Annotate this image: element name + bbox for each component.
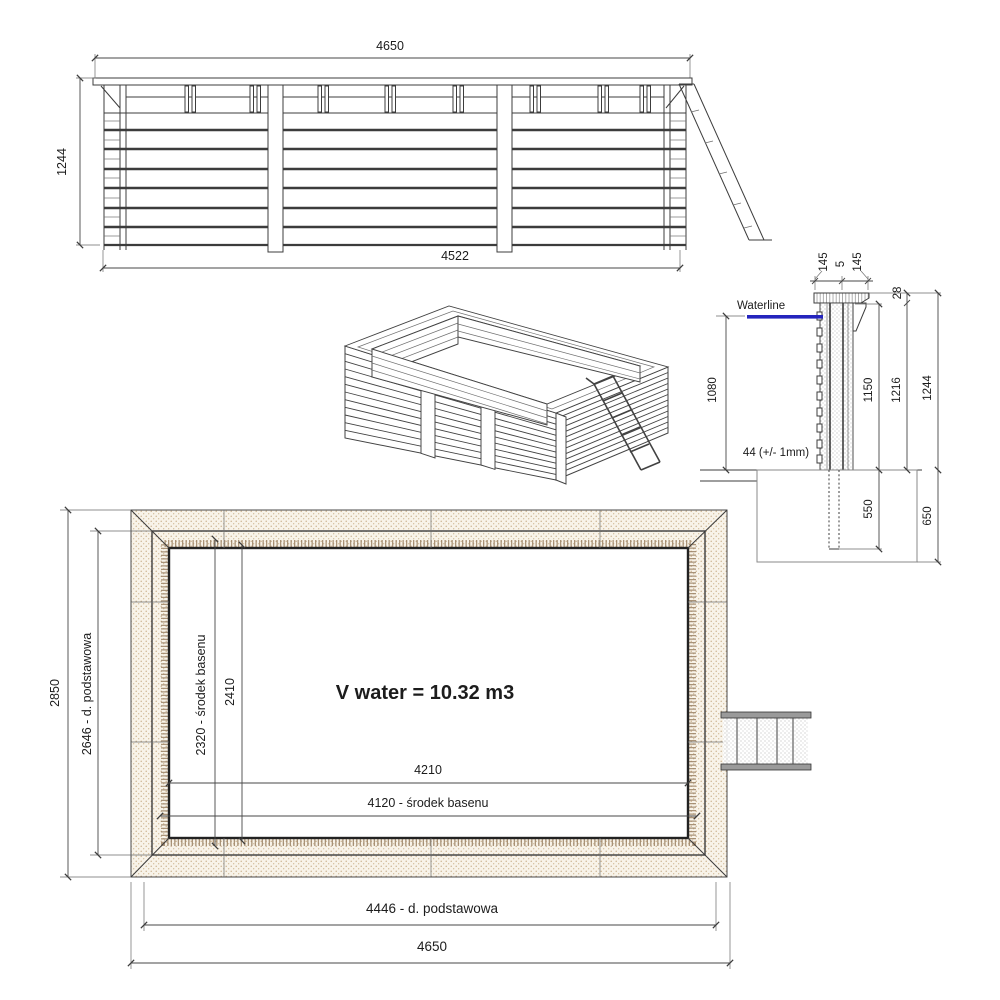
elevation-post bbox=[268, 85, 283, 252]
pool-drawing-svg: 4650 bbox=[0, 0, 1000, 1000]
waterline-marker bbox=[747, 315, 823, 319]
section-dim-footing-depth: 650 bbox=[922, 506, 934, 525]
waterline-label: Waterline bbox=[737, 300, 785, 312]
side-elevation-view: 4650 bbox=[55, 39, 772, 272]
elevation-coping bbox=[93, 78, 692, 85]
isometric-view bbox=[345, 306, 668, 484]
elevation-top-rail-band bbox=[126, 86, 664, 112]
plan-dim-inner-width: 4210 bbox=[414, 763, 442, 777]
section-dim-1080: 1080 bbox=[707, 316, 745, 470]
elevation-planks bbox=[104, 113, 686, 245]
cross-section-view: 145 5 145 Waterline bbox=[700, 252, 941, 562]
elevation-dim-bottom-label: 4522 bbox=[441, 249, 469, 263]
plan-ladder bbox=[721, 712, 811, 770]
plan-dim-outer-height: 2850 bbox=[48, 679, 62, 707]
plan-dim-center-width: 4120 - środek basenu bbox=[368, 796, 489, 810]
elevation-dim-left-label: 1244 bbox=[55, 148, 69, 176]
elevation-dim-bottom: 4522 bbox=[103, 249, 680, 272]
section-dim-water-depth: 1080 bbox=[707, 377, 719, 403]
plan-bottom-dims: 4446 - d. podstawowa 4650 bbox=[131, 882, 730, 969]
plan-dim-outer-width: 4650 bbox=[417, 939, 447, 954]
section-cap-dims: 145 5 145 bbox=[810, 252, 873, 290]
plan-view: V water = 10.32 m3 2850 2646 - d. podsta… bbox=[48, 510, 811, 969]
section-dim-cap-gap: 5 bbox=[835, 261, 847, 267]
plan-dim-inner-height: 2410 bbox=[223, 678, 237, 706]
plan-dim-base-width: 4446 - d. podstawowa bbox=[366, 901, 499, 916]
section-dim-cap-thickness: 28 bbox=[892, 287, 904, 300]
section-waterline: Waterline bbox=[737, 300, 823, 319]
section-wall bbox=[817, 303, 866, 470]
plan-dim-center-height: 2320 - środek basenu bbox=[194, 634, 208, 755]
iso-corner-post bbox=[556, 413, 566, 484]
section-dim-wall-height: 1150 bbox=[863, 378, 875, 403]
section-ground-footing bbox=[700, 470, 922, 562]
section-dim-cap-right: 145 bbox=[852, 252, 864, 271]
section-cap bbox=[814, 293, 869, 303]
section-dim-wall-with-cap: 1216 bbox=[891, 377, 903, 403]
elevation-dim-top: 4650 bbox=[95, 39, 690, 80]
elevation-dim-top-label: 4650 bbox=[376, 39, 404, 53]
section-dim-cap-left: 145 bbox=[818, 252, 830, 271]
elevation-post bbox=[497, 85, 512, 252]
section-dim-buried-depth: 550 bbox=[863, 499, 875, 518]
section-dim-total-height: 1244 bbox=[922, 375, 934, 401]
section-dim-wall-thickness: 44 (+/- 1mm) bbox=[743, 447, 809, 459]
technical-drawing-sheet: 4650 bbox=[0, 0, 1000, 1000]
plan-dim-base-height: 2646 - d. podstawowa bbox=[80, 633, 94, 755]
elevation-ladder bbox=[679, 84, 772, 240]
plan-volume-label: V water = 10.32 m3 bbox=[336, 682, 514, 704]
elevation-dim-left: 1244 bbox=[55, 78, 100, 245]
